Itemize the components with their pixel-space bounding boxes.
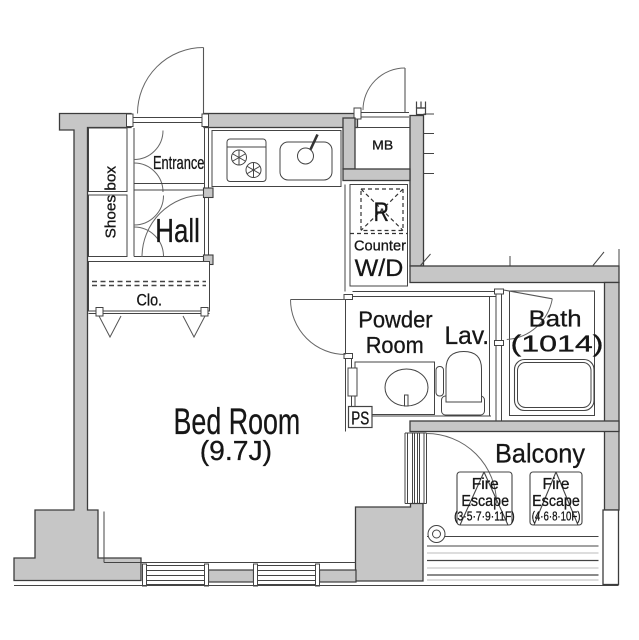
svg-text:Fire: Fire (543, 476, 570, 493)
svg-text:Balcony: Balcony (495, 439, 585, 469)
svg-text:(3·5·7·9·11F): (3·5·7·9·11F) (454, 510, 515, 524)
svg-text:MB: MB (372, 138, 393, 153)
svg-text:PS: PS (351, 409, 369, 429)
svg-text:Clo.: Clo. (137, 291, 163, 310)
svg-text:Bath: Bath (529, 306, 582, 332)
svg-text:(4·6·8·10F): (4·6·8·10F) (532, 510, 581, 524)
svg-text:Escape: Escape (461, 493, 509, 510)
svg-text:Shoes box: Shoes box (102, 165, 119, 238)
svg-text:(1014): (1014) (511, 331, 604, 357)
svg-text:Hall: Hall (155, 212, 200, 249)
svg-text:Counter: Counter (354, 238, 406, 255)
svg-text:Entrance: Entrance (153, 153, 205, 173)
svg-text:(9.7J): (9.7J) (200, 435, 272, 466)
svg-text:Room: Room (366, 332, 424, 358)
svg-text:W/D: W/D (355, 255, 404, 282)
svg-text:Lav.: Lav. (445, 322, 490, 350)
svg-text:Escape: Escape (532, 493, 580, 510)
svg-text:R: R (374, 197, 389, 227)
svg-text:Fire: Fire (472, 476, 499, 493)
svg-text:Powder: Powder (358, 307, 433, 333)
